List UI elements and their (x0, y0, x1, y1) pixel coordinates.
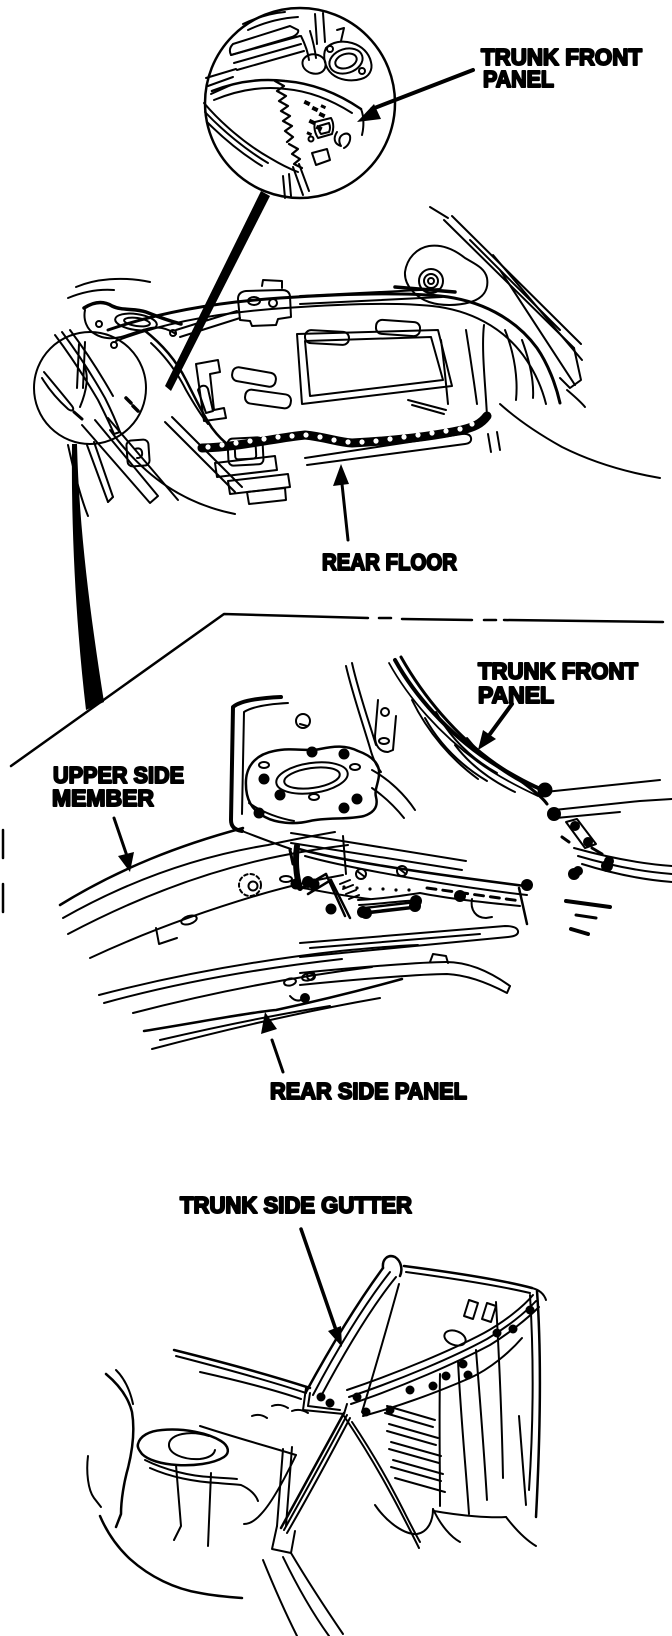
svg-text:PANEL: PANEL (478, 682, 554, 708)
svg-text:PANEL: PANEL (483, 66, 554, 92)
svg-text:REAR FLOOR: REAR FLOOR (322, 549, 457, 575)
svg-text:MEMBER: MEMBER (52, 785, 154, 811)
svg-text:TRUNK FRONT: TRUNK FRONT (478, 658, 639, 684)
svg-text:TRUNK SIDE GUTTER: TRUNK SIDE GUTTER (180, 1192, 412, 1218)
svg-text:REAR SIDE PANEL: REAR SIDE PANEL (270, 1078, 467, 1104)
